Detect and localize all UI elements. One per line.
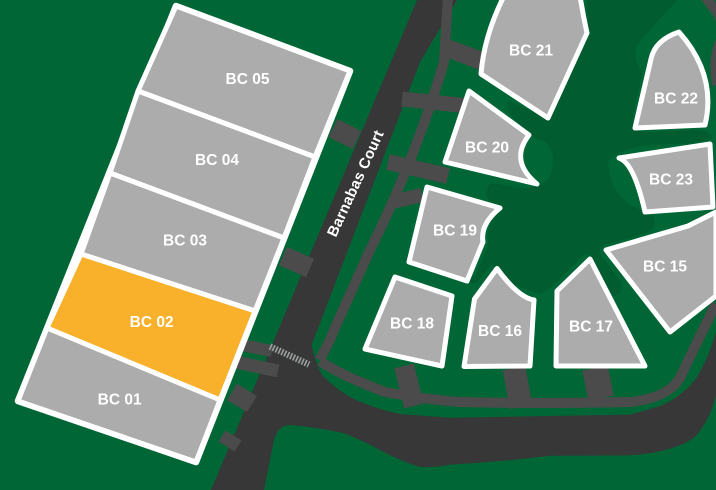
svg-text:BC 01: BC 01 bbox=[98, 392, 142, 409]
svg-text:BC 23: BC 23 bbox=[649, 172, 693, 189]
svg-text:BC 20: BC 20 bbox=[465, 140, 509, 157]
svg-text:BC 22: BC 22 bbox=[654, 91, 698, 108]
svg-text:BC 18: BC 18 bbox=[390, 316, 434, 333]
svg-text:BC 17: BC 17 bbox=[569, 319, 613, 336]
svg-text:BC 16: BC 16 bbox=[478, 323, 522, 340]
svg-text:BC 19: BC 19 bbox=[433, 223, 477, 240]
svg-text:BC 15: BC 15 bbox=[643, 259, 687, 276]
svg-text:BC 05: BC 05 bbox=[226, 71, 270, 88]
svg-text:BC 03: BC 03 bbox=[163, 233, 207, 250]
svg-text:BC 21: BC 21 bbox=[509, 43, 553, 60]
svg-text:BC 04: BC 04 bbox=[195, 152, 239, 169]
svg-text:BC 02: BC 02 bbox=[130, 314, 174, 331]
